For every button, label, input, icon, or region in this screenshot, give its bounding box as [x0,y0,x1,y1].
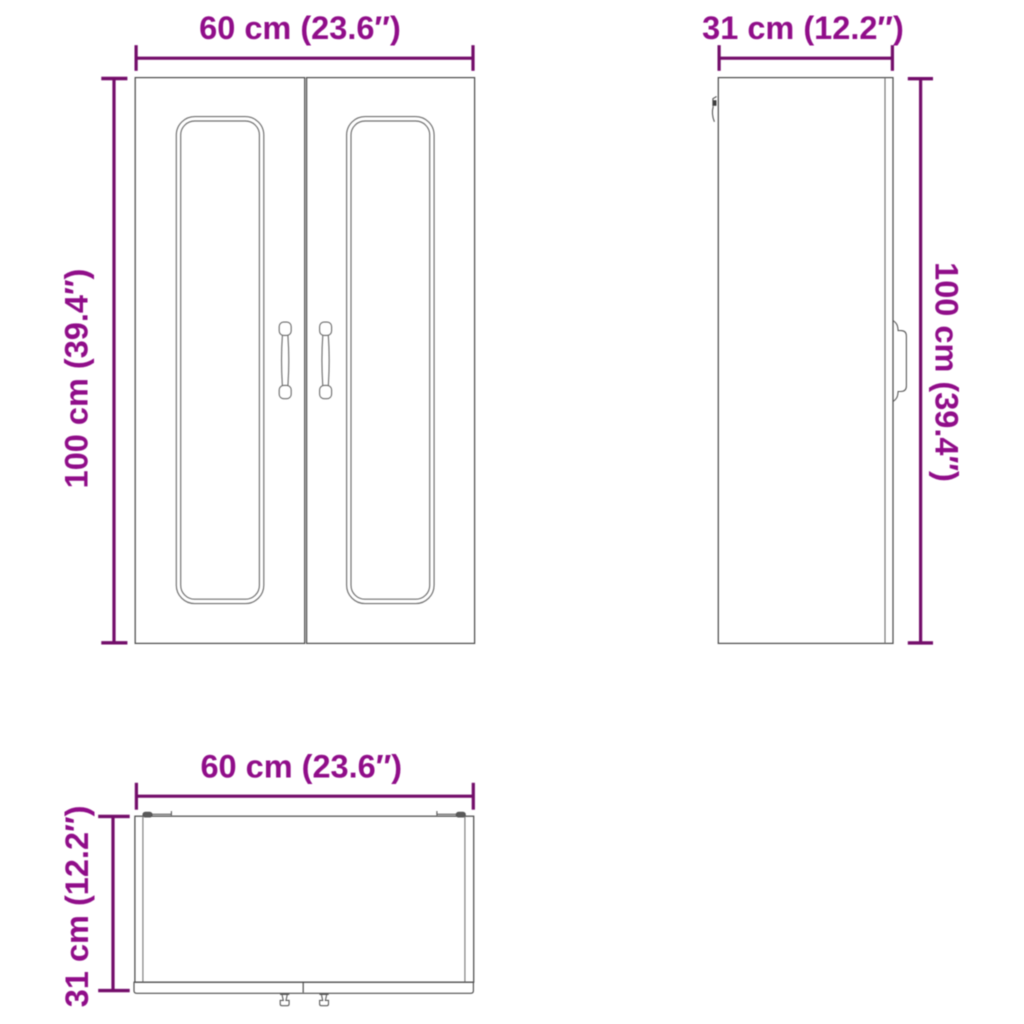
svg-text:60 cm (23.6″): 60 cm (23.6″) [200,748,402,784]
svg-text:60 cm (23.6″): 60 cm (23.6″) [199,10,401,46]
svg-text:100 cm (39.4″): 100 cm (39.4″) [929,262,965,482]
svg-text:100 cm (39.4″): 100 cm (39.4″) [59,269,95,489]
svg-text:31 cm (12.2″): 31 cm (12.2″) [702,10,904,46]
svg-text:31 cm (12.2″): 31 cm (12.2″) [59,806,95,1008]
